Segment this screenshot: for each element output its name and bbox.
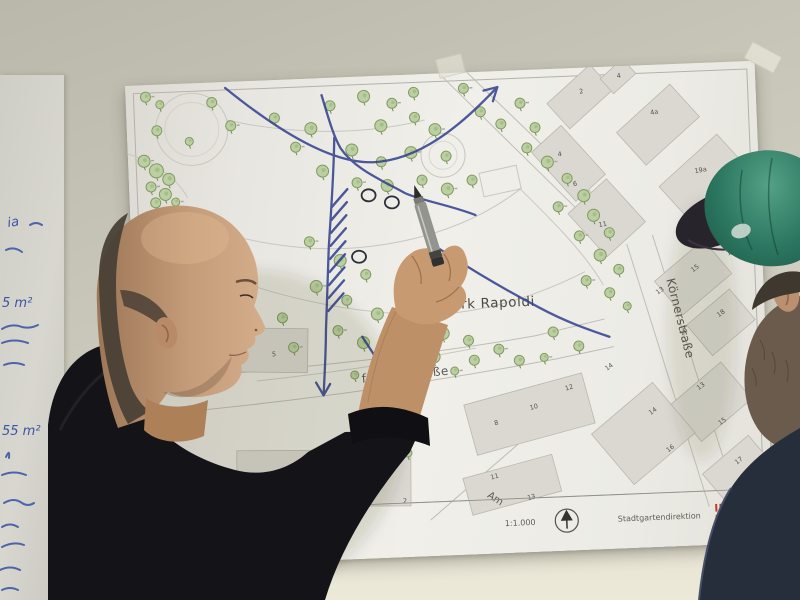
photo-scene: ia 5 m² 55 m² [0,0,800,600]
crown-highlight [141,212,229,264]
pen-tip [410,184,421,199]
right-man-beard [744,296,800,450]
people-layer [0,0,800,600]
nostril [255,329,258,332]
right-man-jacket [699,428,800,600]
